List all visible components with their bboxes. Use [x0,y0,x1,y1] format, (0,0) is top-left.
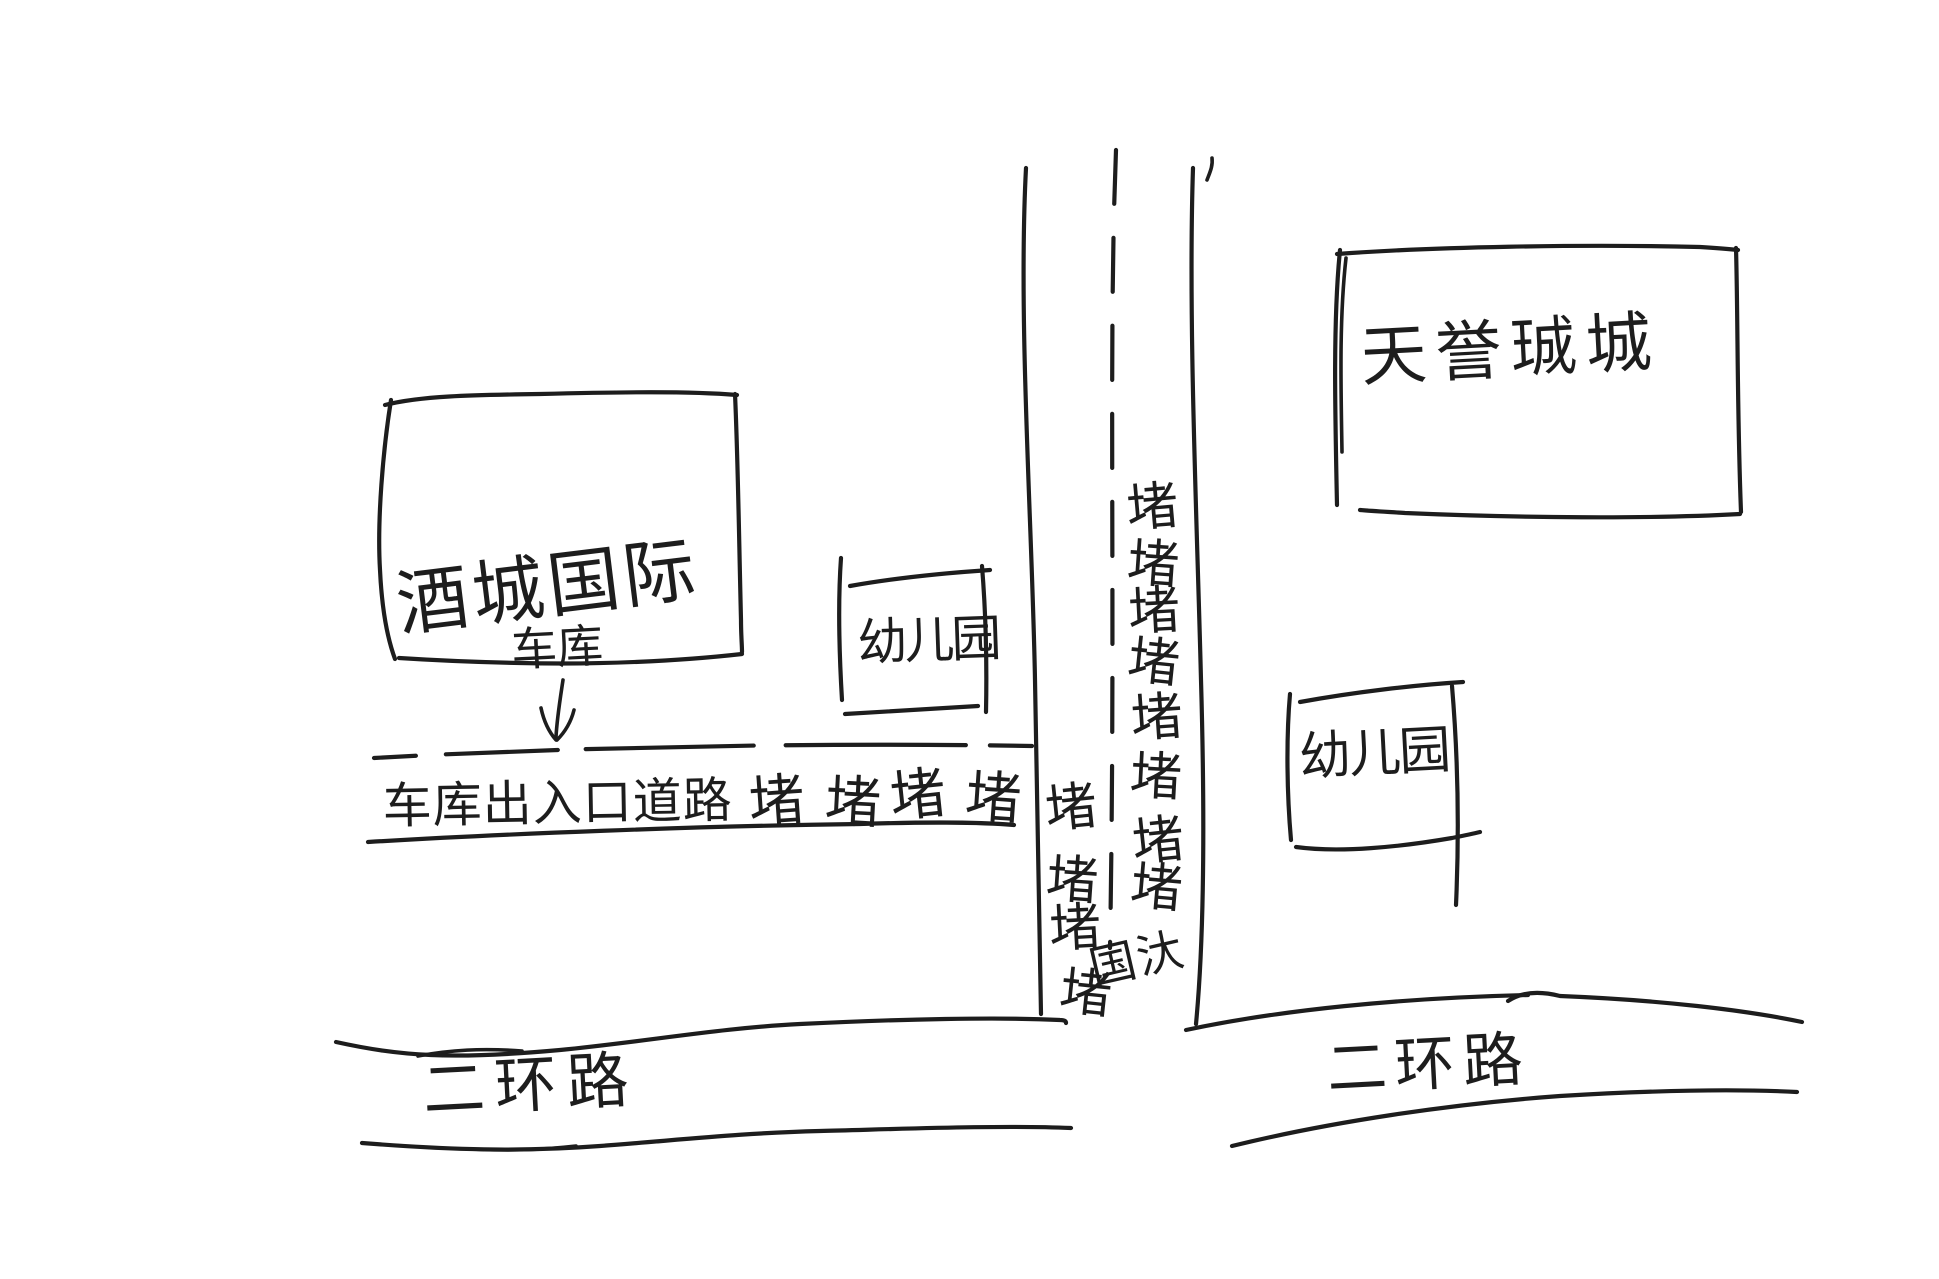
down-arrow-icon [541,680,574,740]
road-tick-stroke [1207,158,1212,180]
jam-char: 堵 [887,760,949,830]
vertical-road: 堵 堵 堵 堵 堵 堵 堵 堵 堵 堵 堵 堵 国汏 [1024,150,1213,1026]
jam-char: 堵 [1042,776,1100,841]
hand-drawn-traffic-map: 酒城国际 车库 车库出入口道路 堵 堵 堵 堵 幼儿园 [0,0,1939,1279]
jam-char: 堵 [1125,630,1183,695]
ring-road-left-top-line [336,1019,1066,1056]
vertical-road-center-dashed-line [1110,150,1116,948]
jam-char: 堵 [1129,686,1185,749]
ring-road-right-top-line-2 [1508,993,1802,1022]
ring-road-right: 二环路 [1186,993,1802,1146]
top-right-building-label: 天誉珹城 [1359,303,1663,396]
jam-char: 堵 [1128,746,1183,809]
vertical-road-left-line [1024,168,1041,1014]
top-right-building: 天誉珹城 [1335,246,1741,517]
ring-road-right-bottom-line [1232,1090,1797,1146]
garage-road: 车库出入口道路 堵 堵 堵 堵 [368,745,1032,842]
right-kindergarten: 幼儿园 [1287,682,1480,905]
garage-road-name: 车库出入口道路 [382,772,733,835]
jam-char: 堵 [1124,476,1181,540]
garage-road-dashed-line [374,745,1032,758]
right-kindergarten-outline [1287,682,1480,905]
right-kindergarten-label: 幼儿园 [1298,720,1451,788]
ring-road-right-label: 二环路 [1325,1024,1532,1105]
outline-stroke [735,394,742,652]
vertical-road-right-line [1192,168,1204,1024]
garage-annotation: 车库 [510,618,605,740]
jam-char: 堵 [1128,856,1185,920]
ring-road-left-label: 二环路 [421,1043,641,1127]
ring-road-left-bottom-line [362,1127,1071,1150]
ring-road-left: 二环路 [336,1019,1071,1150]
left-kindergarten: 幼儿园 [839,558,999,714]
ring-road-right-top-line [1186,995,1528,1030]
left-kindergarten-label: 幼儿园 [856,609,999,672]
garage-label: 车库 [510,618,605,677]
jam-char: 堵 [823,769,882,837]
outline-stroke [379,400,395,659]
outline-stroke [385,392,737,405]
